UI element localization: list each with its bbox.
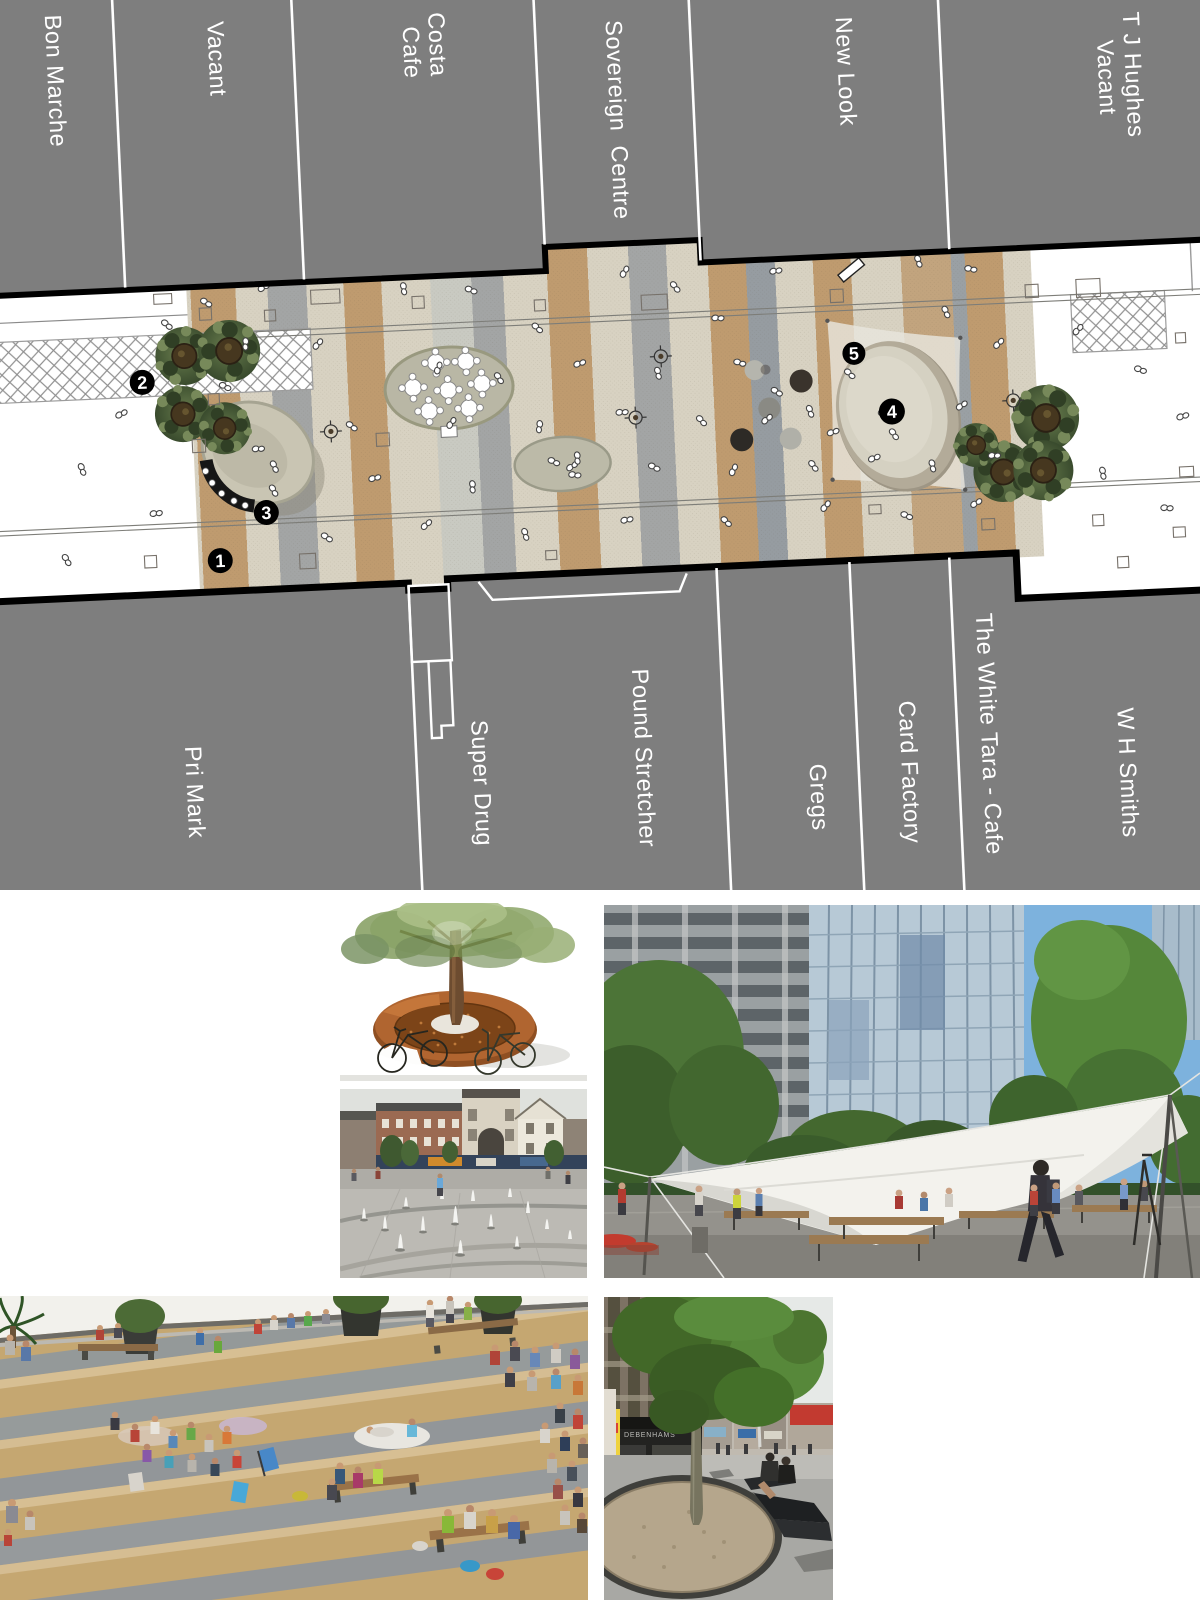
svg-text:DEBENHAMS: DEBENHAMS <box>624 1432 676 1439</box>
svg-text:Gregs: Gregs <box>804 763 833 831</box>
svg-text:4: 4 <box>886 402 897 422</box>
svg-text:3: 3 <box>261 503 272 523</box>
svg-text:New Look: New Look <box>831 16 862 126</box>
svg-text:Costa: Costa <box>423 12 452 78</box>
svg-text:Cafe: Cafe <box>398 26 426 79</box>
svg-text:1: 1 <box>215 551 226 571</box>
svg-text:Vacant: Vacant <box>1092 39 1121 115</box>
svg-text:5: 5 <box>848 343 859 363</box>
svg-text:Vacant: Vacant <box>202 21 231 97</box>
svg-text:Pri Mark: Pri Mark <box>180 745 210 838</box>
svg-text:2: 2 <box>137 373 148 393</box>
